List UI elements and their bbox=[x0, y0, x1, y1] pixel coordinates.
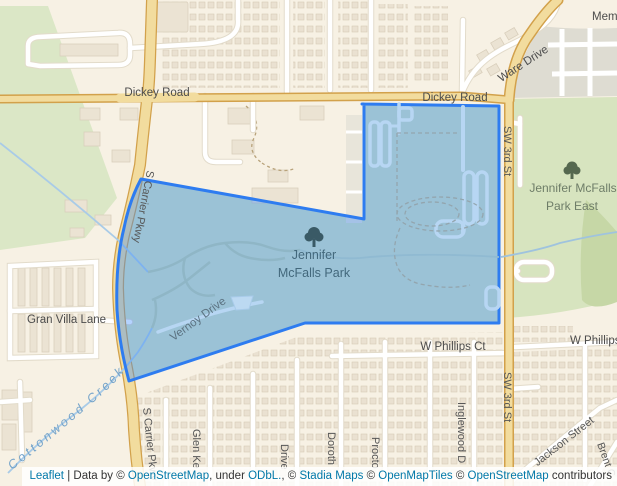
glen-ke-label: Glen Ke bbox=[190, 429, 202, 469]
stadia-link[interactable]: Stadia Maps bbox=[299, 470, 363, 482]
odbl-link[interactable]: ODbL. bbox=[248, 470, 281, 482]
map-canvas[interactable]: Dickey Road Dickey Road Ware Drive Mem S… bbox=[0, 0, 617, 486]
park-east-label-line2: Park East bbox=[546, 199, 599, 213]
attribution-separator: | bbox=[67, 470, 70, 482]
inglewood-label: Inglewood D bbox=[455, 402, 467, 463]
leaflet-link[interactable]: Leaflet bbox=[29, 470, 64, 482]
mcfalls-park-label-line1: Jennifer bbox=[292, 248, 336, 262]
sw-3rd-st-label-bottom: SW 3rd St bbox=[501, 372, 513, 422]
memorial-label: Mem bbox=[592, 11, 617, 23]
dickey-road-label-west: Dickey Road bbox=[124, 87, 189, 99]
dorothy-label: Doroth bbox=[325, 432, 337, 465]
map-tiles: Dickey Road Dickey Road Ware Drive Mem S… bbox=[0, 0, 617, 486]
osm-contributors-link[interactable]: OpenStreetMap bbox=[468, 470, 549, 482]
attribution-under: , under bbox=[209, 470, 245, 482]
dickey-road-label-east: Dickey Road bbox=[422, 92, 487, 104]
attribution-c2: © bbox=[367, 470, 375, 482]
park-east-label-line1: Jennifer McFalls bbox=[529, 181, 616, 195]
sw-3rd-st-label-top: SW 3rd St bbox=[501, 126, 513, 176]
attribution-data-by: Data by © bbox=[73, 470, 124, 482]
osm-link[interactable]: OpenStreetMap bbox=[128, 470, 209, 482]
w-phillips-label-east: W Phillips bbox=[570, 335, 617, 347]
attribution-c1: , © bbox=[281, 470, 296, 482]
proctor-label: Procto bbox=[369, 437, 381, 469]
gran-villa-lane-label: Gran Villa Lane bbox=[27, 314, 106, 326]
openmaptiles-link[interactable]: OpenMapTiles bbox=[378, 470, 452, 482]
attribution-bar: Leaflet | Data by © OpenStreetMap, under… bbox=[22, 467, 617, 486]
attribution-contributors: contributors bbox=[552, 470, 612, 482]
mcfalls-park-label-line2: McFalls Park bbox=[278, 266, 351, 280]
w-phillips-ct-label: W Phillips Ct bbox=[420, 341, 486, 353]
attribution-c3: © bbox=[456, 470, 464, 482]
